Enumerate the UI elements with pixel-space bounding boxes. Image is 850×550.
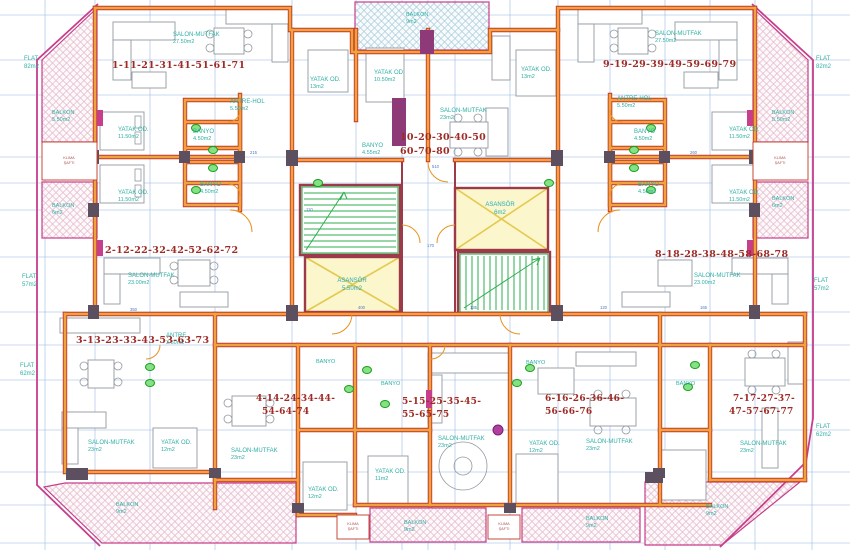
balcony-label: BALKON	[586, 516, 608, 522]
apartment-number: 10-20-30-40-50	[400, 132, 486, 143]
room-area: 4.50m2	[193, 136, 211, 142]
room-area: 12m2	[529, 448, 543, 454]
room-label: YATAK OD.	[374, 70, 405, 76]
dining-table	[88, 360, 114, 388]
room-label: YATAK OD.	[521, 67, 552, 73]
shaft-label: KLIMA	[347, 522, 359, 526]
room-label: SALON-MUTFAK	[694, 273, 741, 279]
room-label: SALON-MUTFAK	[88, 440, 135, 446]
sofa	[772, 274, 788, 304]
room-label: YATAK OD.	[310, 77, 341, 83]
dimension: 120	[600, 305, 608, 310]
coffee-table	[684, 72, 718, 88]
sofa	[732, 258, 788, 274]
room-label: SALON-MUTFAK	[173, 32, 220, 38]
kitchen-counter	[576, 352, 636, 366]
dimension: 170	[427, 243, 435, 248]
round-seating-set	[439, 442, 487, 490]
shaft-label: KLIMA	[498, 522, 510, 526]
toilet-icon	[314, 180, 323, 187]
room-label: BANYO	[676, 381, 696, 387]
room-label: YATAK OD.	[729, 127, 760, 133]
dining-table	[745, 358, 785, 386]
flat-area: 57m2	[814, 286, 830, 292]
apartment-number: 9-19-29-39-49-59-69-79	[603, 59, 736, 70]
apartment-number: 8-18-28-38-48-58-68-78	[655, 249, 788, 260]
toilet-icon	[630, 147, 639, 154]
kitchen-counter	[272, 24, 288, 62]
dimension: 400	[358, 305, 366, 310]
balcony-bottom-center-right	[522, 508, 640, 542]
room-area: 10.50m2	[374, 77, 395, 83]
room-label: YATAK OD.	[118, 127, 149, 133]
balcony-area: 6m2	[52, 210, 63, 216]
balcony-label: BALKON	[404, 520, 426, 526]
shaft-label: ŞAFTI	[499, 527, 510, 531]
room-label: YATAK OD.	[161, 440, 192, 446]
flat-area: 57m2	[22, 282, 38, 288]
elevator-area: 6m2	[494, 210, 506, 216]
balcony-label: BALKON	[406, 12, 428, 18]
flat-area: 62m2	[20, 371, 36, 377]
balcony-bottom-left	[44, 483, 296, 543]
room-label: BANYO	[634, 129, 655, 135]
room-area: 4.50m2	[634, 136, 652, 142]
shaft-label: ŞAFTI	[64, 161, 75, 165]
apartment-number: 6-16-26-36-46-	[545, 394, 624, 404]
room-label: BANYO	[526, 360, 546, 366]
room-label: ANTRE-HOL	[617, 96, 652, 102]
balcony-area: 9m2	[706, 511, 717, 517]
bed	[303, 462, 347, 510]
kitchen-counter	[60, 318, 140, 333]
bed	[516, 454, 558, 504]
flat-label: FLAT	[22, 274, 37, 280]
staircase-right	[460, 254, 548, 312]
balcony-area: 9m2	[586, 523, 597, 529]
room-area: 23m2	[740, 448, 754, 454]
balcony-area: 9m2	[404, 527, 415, 533]
balcony-area: 9m2	[116, 509, 127, 515]
dimension: 135	[470, 305, 478, 310]
toilet-icon	[209, 165, 218, 172]
kitchen-counter	[226, 8, 290, 24]
flat-label: FLAT	[814, 278, 829, 284]
balcony-label: BALKON	[772, 196, 794, 202]
balcony-label: BALKON	[772, 110, 794, 116]
room-area: 13m2	[310, 84, 324, 90]
floor-plan-canvas: SALON-MUTFAK 27.50m2 YATAK OD. 11.50m2 A…	[0, 0, 850, 550]
room-label: YATAK OD.	[118, 190, 149, 196]
room-label: BANYO	[638, 182, 659, 188]
room-area: 5.50m2	[230, 106, 248, 112]
flat-label: FLAT	[816, 424, 831, 430]
apartment-number: 4-14-24-34-44-	[256, 394, 335, 404]
room-label: BANYO	[362, 143, 383, 149]
dining-table	[658, 260, 692, 286]
room-area: 4.50m2	[638, 189, 656, 195]
apartment-number: 2-12-22-32-42-52-62-72	[105, 245, 238, 256]
room-label: YATAK OD.	[529, 441, 560, 447]
flat-area: 62m2	[816, 432, 832, 438]
toilet-icon	[363, 367, 372, 374]
bed	[516, 50, 556, 96]
room-label: YATAK OD.	[375, 469, 406, 475]
dimension: 165	[700, 305, 708, 310]
apartment-number: 3-13-23-33-43-53-63-73	[76, 335, 209, 346]
sofa	[486, 108, 508, 156]
sofa	[104, 258, 160, 274]
room-area: 4.50m2	[200, 189, 218, 195]
balcony-bottom-center	[370, 508, 486, 542]
toilet-icon	[545, 180, 554, 187]
apartment-number: 54-64-74	[262, 407, 309, 417]
floor-plan-page: SALON-MUTFAK 27.50m2 YATAK OD. 11.50m2 A…	[0, 0, 850, 550]
room-label: YATAK OD.	[729, 190, 760, 196]
balcony-area: 5.50m2	[52, 117, 70, 123]
toilet-icon	[513, 380, 522, 387]
room-label: ANTRE-HOL	[230, 99, 265, 105]
room-label: SALON-MUTFAK	[128, 273, 175, 279]
kitchen-counter	[578, 8, 642, 24]
room-label: SALON-MUTFAK	[586, 439, 633, 445]
apartment-number: 7-17-27-37-	[733, 394, 795, 404]
elevator-label: ASANSÖR	[337, 277, 367, 284]
elevator-label: ASANSÖR	[485, 201, 515, 208]
room-area: 13m2	[521, 74, 535, 80]
sofa	[104, 274, 120, 304]
room-area: 23m2	[440, 115, 454, 121]
room-area: 23m2	[88, 447, 102, 453]
shaft-label: ŞAFTI	[775, 161, 786, 165]
sofa	[62, 412, 106, 428]
shaft-label: KLIMA	[63, 156, 75, 160]
room-label: SALON-MUTFAK	[438, 436, 485, 442]
dining-table	[538, 368, 574, 394]
kitchen-counter	[622, 292, 670, 307]
room-area: 4.55m2	[362, 150, 380, 156]
balcony-area: 5.50m2	[772, 117, 790, 123]
flat-area: 82m2	[816, 64, 832, 70]
dimension: 215	[250, 150, 258, 155]
shaft-label: KLIMA	[774, 156, 786, 160]
bed	[153, 428, 197, 468]
flat-label: FLAT	[24, 56, 39, 62]
room-area: 23m2	[231, 455, 245, 461]
kitchen-counter	[180, 292, 228, 307]
plumbing-fixtures	[146, 125, 700, 436]
room-area: 5.50m2	[617, 103, 635, 109]
sofa	[113, 22, 175, 40]
dimension: 260	[690, 150, 698, 155]
room-area: 12m2	[308, 494, 322, 500]
kitchen-counter	[788, 342, 804, 384]
flat-label: FLAT	[816, 56, 831, 62]
room-area: 27.50m2	[173, 39, 194, 45]
elevator-area: 5.50m2	[342, 286, 363, 292]
room-label: BANYO	[193, 129, 214, 135]
balcony-label: BALKON	[52, 203, 74, 209]
elevator-left	[305, 257, 400, 312]
staircase-left	[302, 187, 398, 253]
balcony-right-lower	[753, 182, 808, 238]
bed	[660, 450, 706, 500]
room-label: BANYO	[316, 359, 336, 365]
toilet-icon	[381, 401, 390, 408]
balcony-label: BALKON	[706, 504, 728, 510]
coffee-table	[132, 72, 166, 88]
balcony-area: 9m2	[406, 19, 417, 25]
apartment-number: 60-70-80	[400, 146, 450, 157]
room-label: SALON-MUTFAK	[655, 31, 702, 37]
room-area: 12m2	[161, 447, 175, 453]
room-label: SALON-MUTFAK	[440, 108, 487, 114]
balcony-label: BALKON	[116, 502, 138, 508]
flat-area: 82m2	[24, 64, 40, 70]
apartment-number: 56-66-76	[545, 407, 592, 417]
dining-table	[178, 260, 210, 286]
room-area: 23m2	[438, 443, 452, 449]
room-area: 11.50m2	[118, 197, 139, 203]
dimension: 350	[130, 307, 138, 312]
room-label: BANYO	[381, 381, 401, 387]
room-area: 11.50m2	[729, 134, 750, 140]
room-area: 23.00m2	[128, 280, 149, 286]
room-label: SALON-MUTFAK	[231, 448, 278, 454]
toilet-icon	[209, 147, 218, 154]
dimension: 510	[432, 164, 440, 169]
toilet-icon	[345, 386, 354, 393]
room-area: 23.00m2	[694, 280, 715, 286]
apartment-number: 1-11-21-31-41-51-61-71	[112, 60, 245, 71]
sofa	[762, 408, 778, 468]
elevator-right	[455, 188, 548, 250]
kitchen-counter	[492, 36, 510, 80]
room-area: 11.50m2	[118, 134, 139, 140]
toilet-icon	[146, 380, 155, 387]
room-label: SALON-MUTFAK	[740, 441, 787, 447]
room-label: YATAK OD.	[308, 487, 339, 493]
fixture-dot	[493, 425, 503, 435]
apartment-number: 55-65-75	[402, 410, 449, 420]
dimension-labels: 170 110 400 135 350 120 165 215 260 510	[130, 150, 708, 312]
balcony-area: 6m2	[772, 203, 783, 209]
shaft-label: ŞAFTI	[348, 527, 359, 531]
room-label: BANYO	[200, 182, 221, 188]
toilet-icon	[630, 165, 639, 172]
kitchen-counter	[578, 24, 594, 62]
flat-label: FLAT	[20, 363, 35, 369]
dimension: 110	[306, 207, 313, 212]
room-area: 11.50m2	[729, 197, 750, 203]
toilet-icon	[691, 362, 700, 369]
room-area: 27.50m2	[655, 38, 676, 44]
balcony-label: BALKON	[52, 110, 74, 116]
room-area: 11m2	[375, 476, 388, 482]
toilet-icon	[146, 364, 155, 371]
room-area: 23m2	[586, 446, 600, 452]
apartment-number: 5-15-25-35-45-	[402, 397, 481, 407]
apartment-number: 47-57-67-77	[729, 407, 794, 417]
dining-table	[618, 28, 648, 54]
